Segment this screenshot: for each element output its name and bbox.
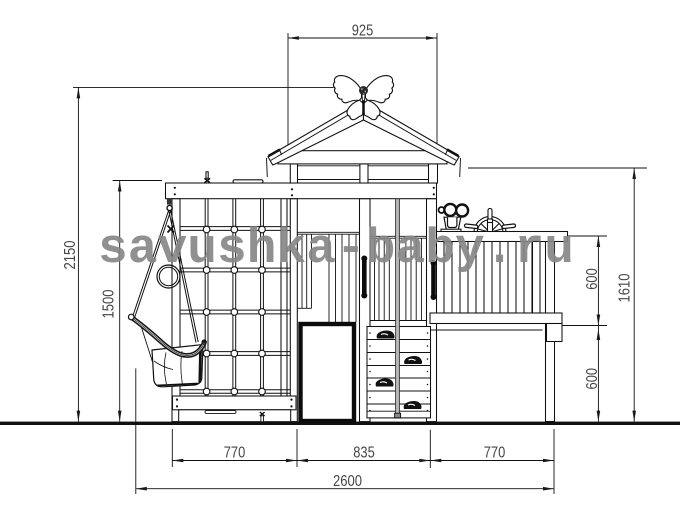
svg-text:2150: 2150	[62, 241, 79, 270]
svg-text:1500: 1500	[101, 290, 118, 319]
svg-text:600: 600	[584, 268, 601, 290]
svg-text:925: 925	[352, 22, 374, 39]
svg-text:835: 835	[353, 444, 375, 461]
svg-text:1610: 1610	[617, 274, 634, 303]
svg-text:2600: 2600	[333, 473, 362, 490]
svg-text:savushka-baby.ru: savushka-baby.ru	[98, 221, 574, 277]
svg-text:770: 770	[224, 444, 246, 461]
svg-text:770: 770	[484, 444, 506, 461]
svg-text:600: 600	[584, 368, 601, 390]
